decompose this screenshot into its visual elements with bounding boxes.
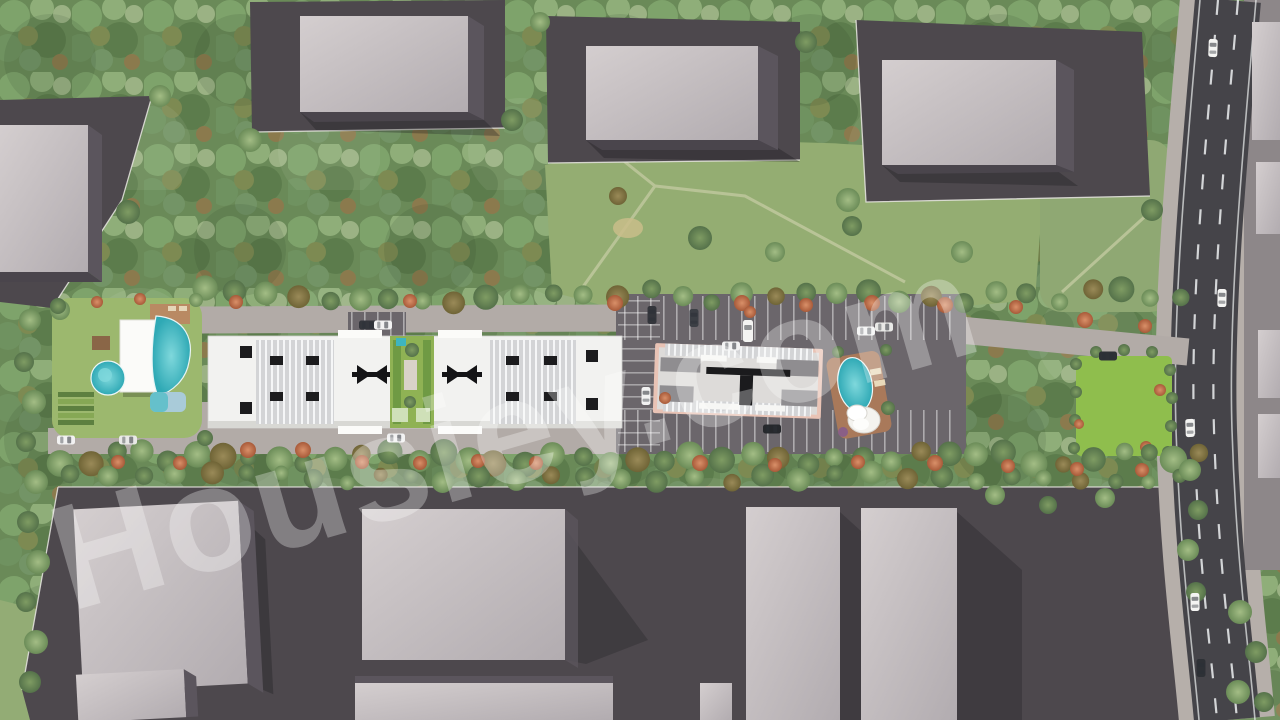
building-top-1 xyxy=(300,16,500,136)
clubhouse xyxy=(120,320,156,392)
terraced-garden xyxy=(58,392,94,425)
site-plan-render xyxy=(0,0,1280,720)
building-bottom-small xyxy=(76,669,198,720)
pergola xyxy=(92,336,110,350)
building-top-3 xyxy=(882,60,1078,186)
amenity-west xyxy=(52,298,202,438)
water-feature xyxy=(396,338,406,346)
ribbed-roof-west xyxy=(256,340,334,424)
east-lawn xyxy=(1068,344,1178,458)
road-asphalt xyxy=(1203,0,1228,720)
garden-courtyard xyxy=(390,336,434,428)
purple-shrub xyxy=(838,427,848,437)
building-top-2 xyxy=(586,46,800,162)
block-a xyxy=(208,330,622,434)
dry-grass-patch xyxy=(613,218,643,238)
block-b xyxy=(653,343,823,419)
building-top-left xyxy=(0,125,102,282)
main-road xyxy=(1175,0,1280,720)
ribbed-roof-east xyxy=(490,340,576,424)
